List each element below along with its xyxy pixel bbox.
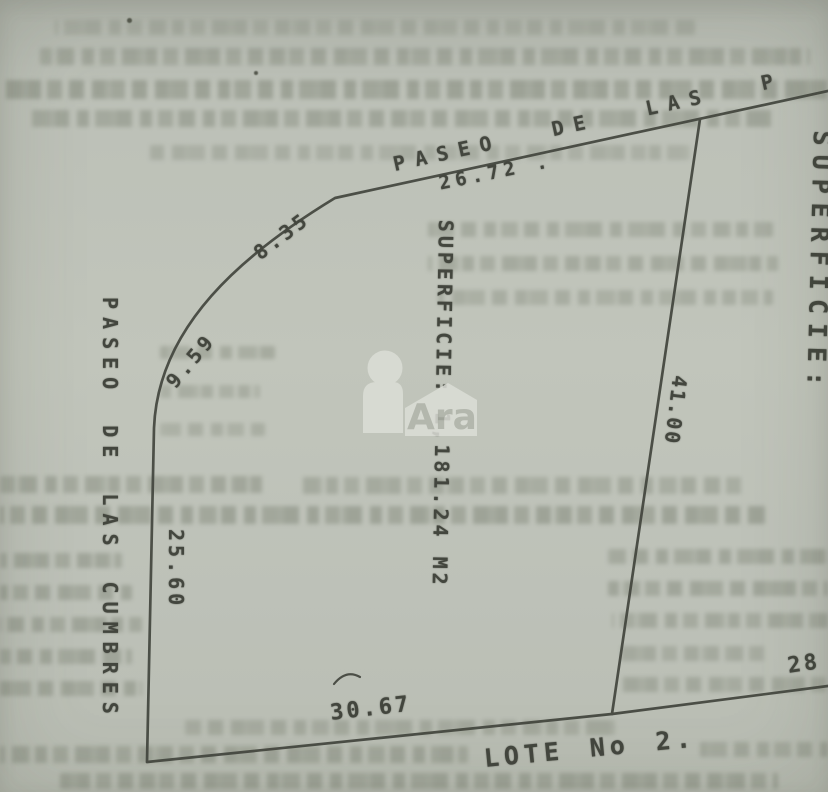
dimension-right-partial: 28 bbox=[786, 649, 822, 678]
dimension-left: 25.60 bbox=[164, 529, 188, 609]
scanned-survey-page: PASEO DE LAS P 26.72 . 8.35 9.59 PASEO D… bbox=[0, 0, 828, 792]
street-label-left: PASEO DE LAS CUMBRES bbox=[98, 297, 122, 722]
watermark-person-head bbox=[368, 351, 403, 386]
watermark-text: Ara bbox=[407, 397, 477, 438]
watermark-person-body bbox=[363, 382, 403, 433]
stray-arc-mark bbox=[334, 674, 360, 684]
ara-watermark: Ara bbox=[340, 335, 490, 445]
